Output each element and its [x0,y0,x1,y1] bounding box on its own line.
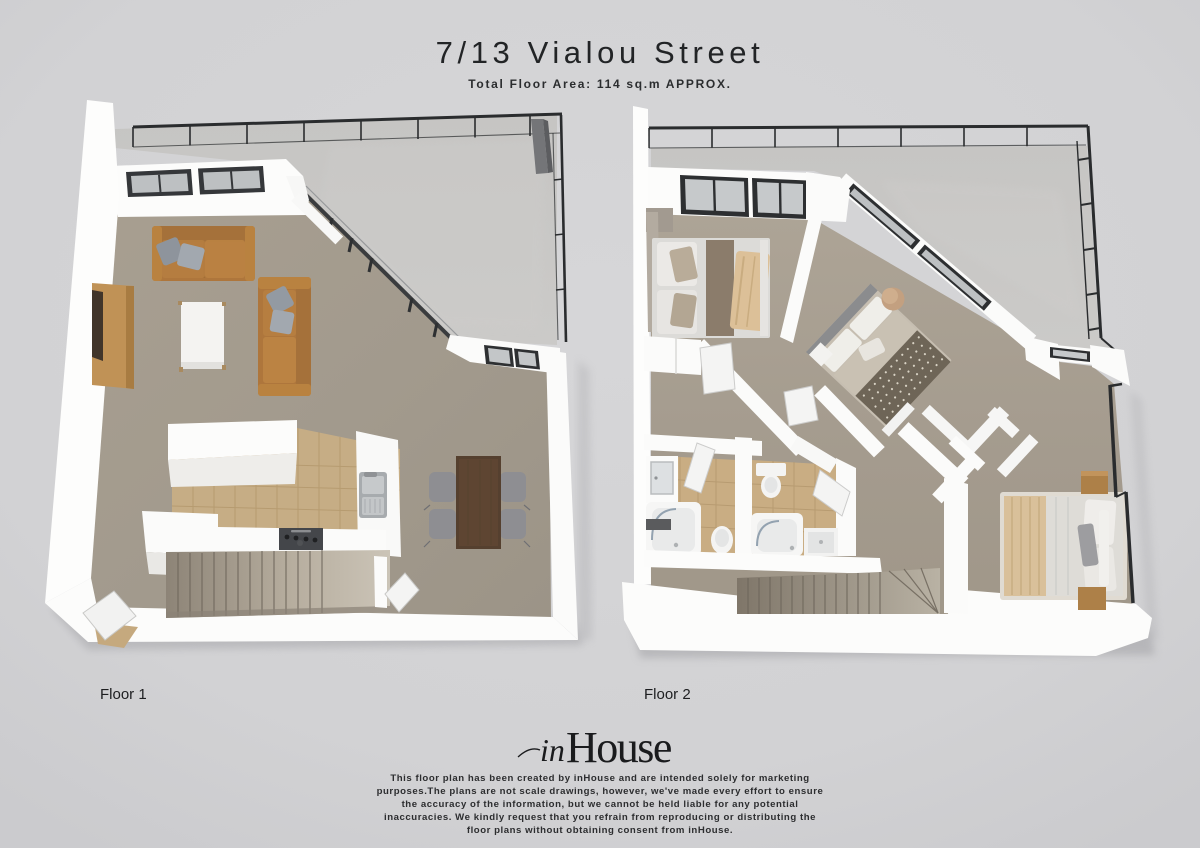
svg-text:Total Floor Area: 114 sq.m APP: Total Floor Area: 114 sq.m APPROX. [468,77,731,91]
svg-text:Floor 1: Floor 1 [100,686,147,703]
svg-text:Floor 2: Floor 2 [644,686,691,703]
svg-text:This floor plan has been creat: This floor plan has been created by inHo… [390,773,809,784]
svg-text:House: House [566,723,671,772]
svg-text:the accuracy of the informatio: the accuracy of the information, but we … [402,799,799,810]
svg-text:7/13 Vialou Street: 7/13 Vialou Street [436,35,765,70]
svg-text:floor plans without obtaining: floor plans without obtaining consent fr… [467,825,733,836]
svg-text:in: in [540,732,565,768]
svg-text:purposes.The plans are not sca: purposes.The plans are not scale drawing… [377,786,824,797]
svg-text:inaccuracies. We kindly reques: inaccuracies. We kindly request that you… [384,812,816,823]
